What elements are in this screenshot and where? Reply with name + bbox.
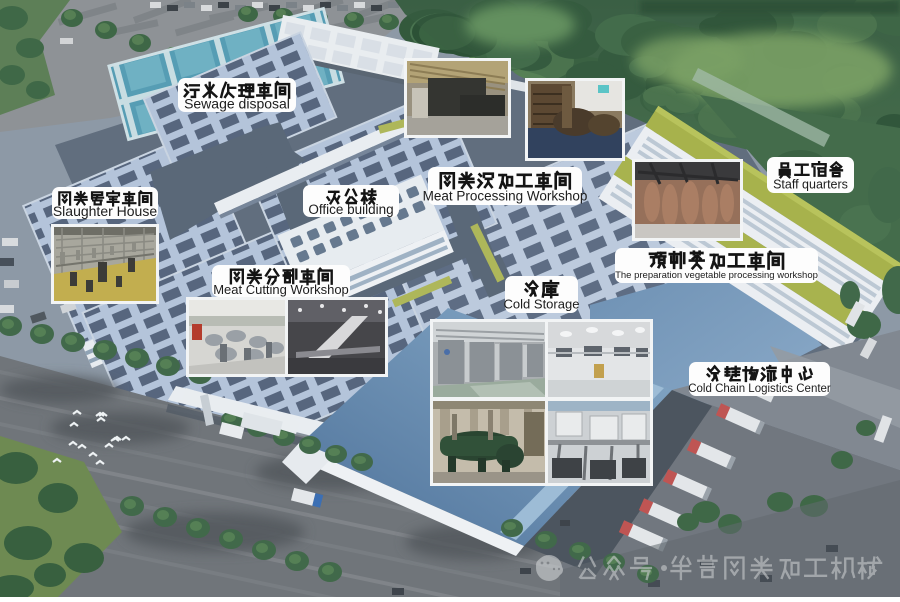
svg-text:Meat Processing Workshop: Meat Processing Workshop (423, 189, 588, 204)
svg-text:Staff quarters: Staff quarters (773, 178, 848, 192)
svg-text:Cold Storage: Cold Storage (504, 297, 580, 312)
svg-text:Sewage disposal: Sewage disposal (184, 96, 290, 112)
svg-text:Meat Cutting Workshop: Meat Cutting Workshop (213, 282, 349, 297)
svg-text:Slaughter House: Slaughter House (53, 203, 158, 219)
svg-text:Office building: Office building (308, 202, 393, 217)
svg-text:Cold Chain Logistics Center: Cold Chain Logistics Center (688, 383, 831, 395)
svg-text:The preparation vegetable proc: The preparation vegetable processing wor… (615, 270, 818, 281)
